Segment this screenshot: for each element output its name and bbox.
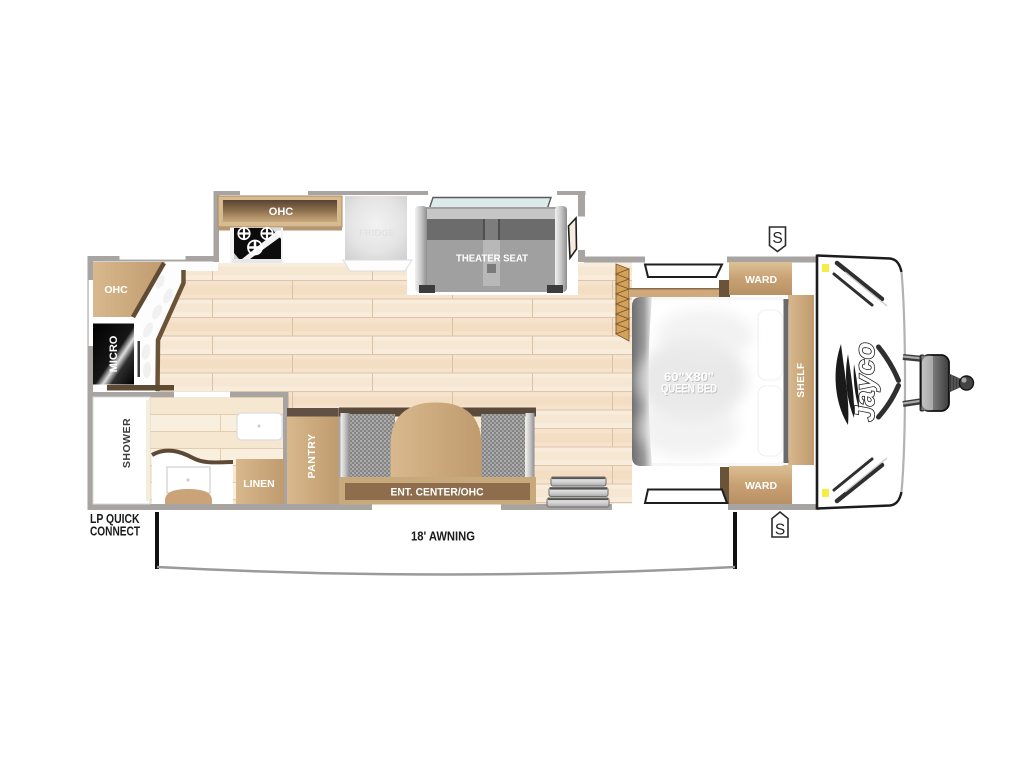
svg-text:S: S [772,230,782,247]
svg-text:LINEN: LINEN [243,478,275,490]
svg-text:SHOWER: SHOWER [121,418,133,468]
svg-text:ENT. CENTER/OHC: ENT. CENTER/OHC [391,487,484,499]
svg-text:WARD: WARD [745,274,777,286]
svg-text:OHC: OHC [104,284,128,296]
svg-text:MICRO: MICRO [108,335,120,372]
svg-text:OHC: OHC [269,206,294,218]
svg-text:QUEEN BED: QUEEN BED [661,382,717,396]
svg-text:CONNECT: CONNECT [90,525,140,539]
svg-text:SHELF: SHELF [796,362,807,397]
svg-text:S: S [775,522,785,539]
svg-text:PANTRY: PANTRY [306,434,318,479]
svg-text:WARD: WARD [745,480,777,492]
svg-text:FRIDGE: FRIDGE [359,228,395,239]
svg-text:18' AWNING: 18' AWNING [411,530,475,544]
svg-text:THEATER SEAT: THEATER SEAT [456,253,529,265]
